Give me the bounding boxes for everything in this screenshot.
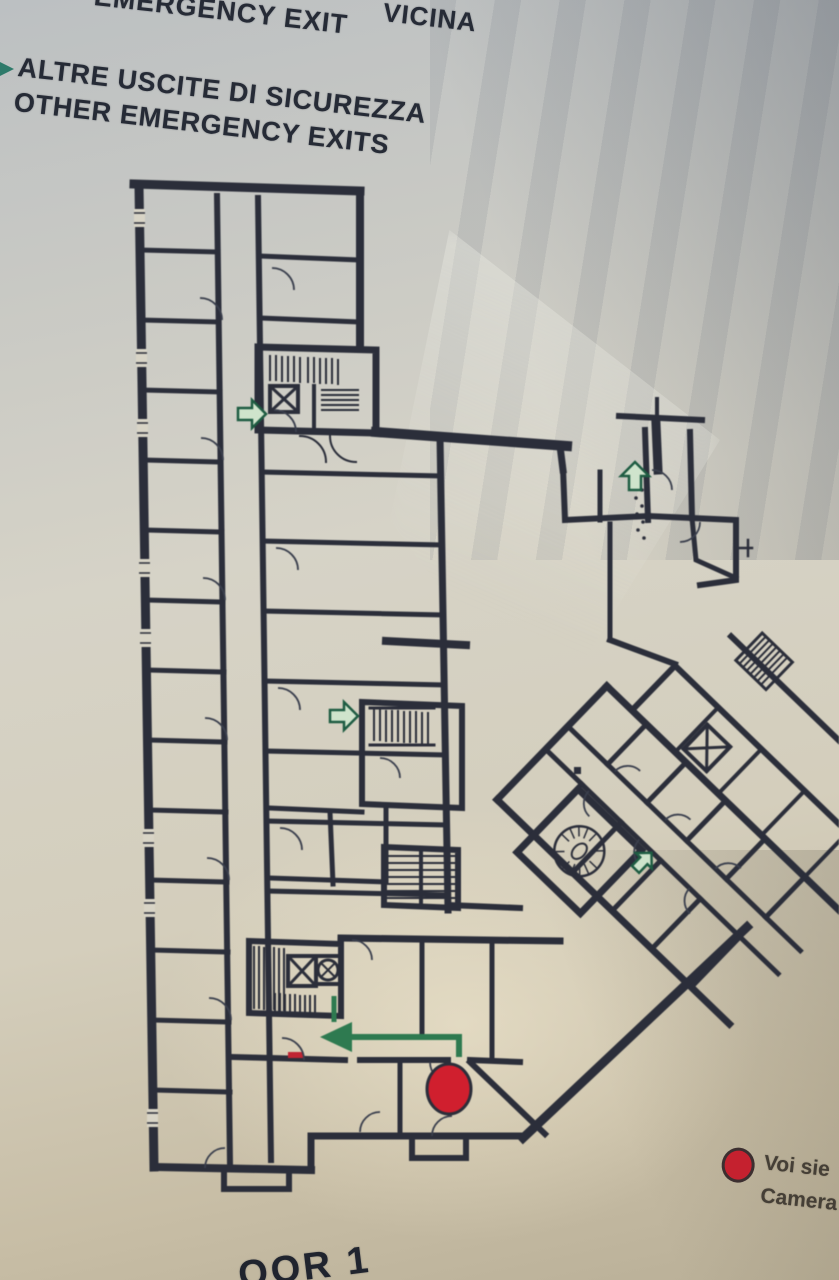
you-are-here-dot-icon [720,1146,756,1184]
stairs-icon [736,633,793,690]
service-core-bottom [249,941,341,1016]
bottom-rooms [232,938,560,1158]
elevator-icon [270,386,298,412]
main-staircase [384,847,520,908]
dumbwaiter-icon [316,956,340,984]
stair-elevator-core-top [258,347,567,470]
column-dot [574,767,581,774]
walls [134,184,839,1189]
stairs-icon [386,856,457,898]
right-wing [563,399,752,664]
stairs-icon [270,356,338,384]
evacuation-plan-photo: VICINA EMERGENCY EXIT ALTRE USCITE DI SI… [0,0,839,1280]
diagonal-outer-wall [523,927,747,1138]
stairs-icon [322,390,358,410]
floor-plan-drawing [0,0,839,1280]
elevator-icon [288,956,316,986]
stairs-icon [370,708,434,745]
spiral-staircase-icon [517,789,641,913]
red-wall-mark [288,1052,303,1058]
courtyard-wall-dash [386,641,466,645]
legend-you-are-here: Voi sie Camera [717,1142,839,1220]
you-are-here-marker [427,1064,471,1114]
diagonal-wing [480,581,839,1041]
